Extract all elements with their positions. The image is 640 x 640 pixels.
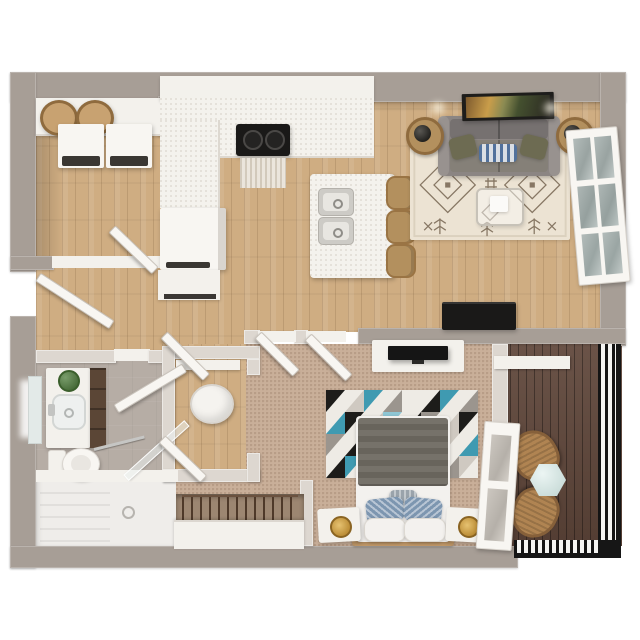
door-pane-6 bbox=[602, 231, 623, 274]
door-pane-4 bbox=[598, 183, 619, 226]
media-console bbox=[442, 302, 516, 330]
vanity-plant bbox=[58, 370, 80, 392]
bathtub-ledge bbox=[36, 470, 178, 482]
vanity-faucet bbox=[48, 404, 55, 416]
wall-art-canvas bbox=[466, 95, 551, 118]
balcony-door-header bbox=[494, 356, 570, 369]
door-pane-3 bbox=[577, 185, 598, 228]
table-lamp-left bbox=[414, 125, 431, 142]
wardrobe-hangers bbox=[182, 495, 298, 523]
kitchen-counter-left-column bbox=[160, 120, 220, 208]
vent-utensil-panel bbox=[240, 158, 286, 188]
balcony-door-pane-1 bbox=[488, 434, 511, 481]
door-pane-5 bbox=[581, 233, 602, 276]
coffee-table-tray bbox=[490, 196, 508, 212]
balcony-railing-corner bbox=[598, 540, 621, 558]
kitchen-upper-cabinets bbox=[160, 76, 374, 100]
bed-blanket bbox=[358, 418, 448, 486]
nightstand-lamp-left bbox=[330, 516, 352, 538]
shower-drain bbox=[122, 506, 135, 519]
wall-bottom bbox=[10, 546, 518, 568]
cooktop bbox=[236, 124, 290, 156]
partition-bathroom-top-a bbox=[36, 350, 116, 363]
balcony-railing-right-edge bbox=[616, 344, 621, 558]
partition-closet-stub-bottom bbox=[247, 453, 260, 482]
white-pillow-2 bbox=[404, 518, 446, 542]
ceiling-spotlight-1 bbox=[428, 99, 448, 117]
burner-1 bbox=[243, 130, 263, 150]
island-sink-2 bbox=[318, 217, 354, 245]
dryer-front-panel bbox=[110, 156, 148, 166]
balcony-door-pane-2 bbox=[484, 488, 508, 541]
washer-front-panel bbox=[62, 156, 100, 166]
door-pane-2 bbox=[594, 136, 615, 179]
wall-entry-stub bbox=[10, 256, 54, 270]
tv bbox=[388, 346, 448, 360]
closet-laundry-basket bbox=[190, 384, 234, 424]
refrigerator bbox=[160, 208, 226, 270]
vanity-drain bbox=[64, 408, 74, 418]
partition-closet-left bbox=[162, 346, 175, 482]
wall-left-upper bbox=[10, 72, 36, 272]
wardrobe-front bbox=[174, 520, 304, 549]
striped-pillow bbox=[479, 144, 517, 162]
refrigerator-vent-slot bbox=[166, 262, 210, 268]
sink-drain-2 bbox=[333, 228, 343, 238]
ceiling-spotlight-2 bbox=[541, 99, 561, 117]
balcony-railing-right bbox=[598, 344, 618, 556]
white-pillow-1 bbox=[364, 518, 406, 542]
bar-stool-3 bbox=[386, 244, 416, 278]
burner-2 bbox=[265, 130, 285, 150]
base-cabinet-kick-vent bbox=[164, 294, 216, 299]
floor-plan-stage bbox=[0, 0, 640, 640]
door-pane-1 bbox=[573, 137, 594, 180]
island-sink-1 bbox=[318, 188, 354, 216]
bathtub-panel-lines bbox=[40, 484, 110, 542]
bathroom-shelf-cabinet bbox=[90, 368, 106, 448]
partition-closet-stub-top bbox=[247, 359, 260, 375]
bathroom-mirror bbox=[28, 376, 42, 444]
sink-drain-1 bbox=[333, 199, 343, 209]
door-header-bathroom bbox=[114, 349, 150, 361]
tv-stand bbox=[412, 360, 424, 364]
